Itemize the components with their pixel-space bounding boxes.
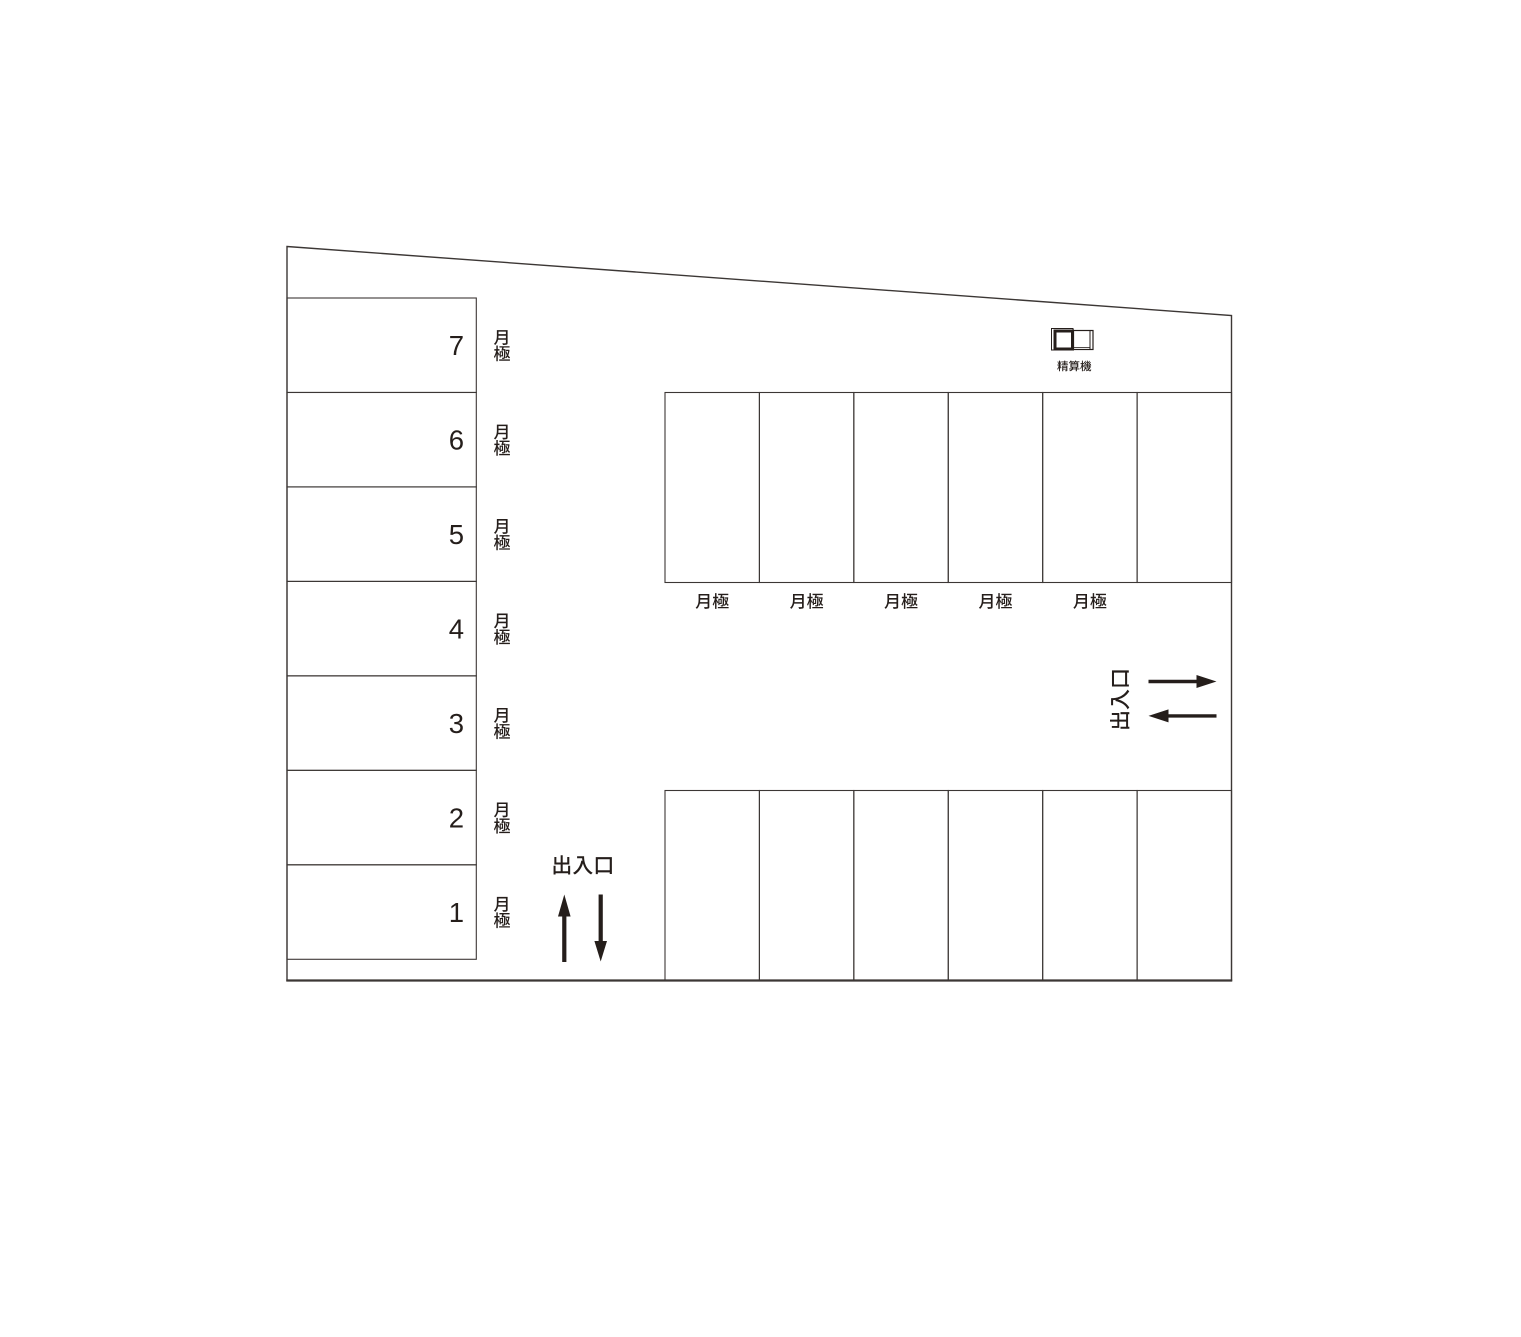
svg-text:7: 7 [449,330,464,361]
svg-text:6: 6 [449,424,464,455]
svg-text:4: 4 [449,613,464,644]
svg-text:5: 5 [449,519,464,550]
svg-text:3: 3 [449,708,464,739]
svg-text:2: 2 [449,802,464,833]
svg-text:1: 1 [449,897,464,928]
